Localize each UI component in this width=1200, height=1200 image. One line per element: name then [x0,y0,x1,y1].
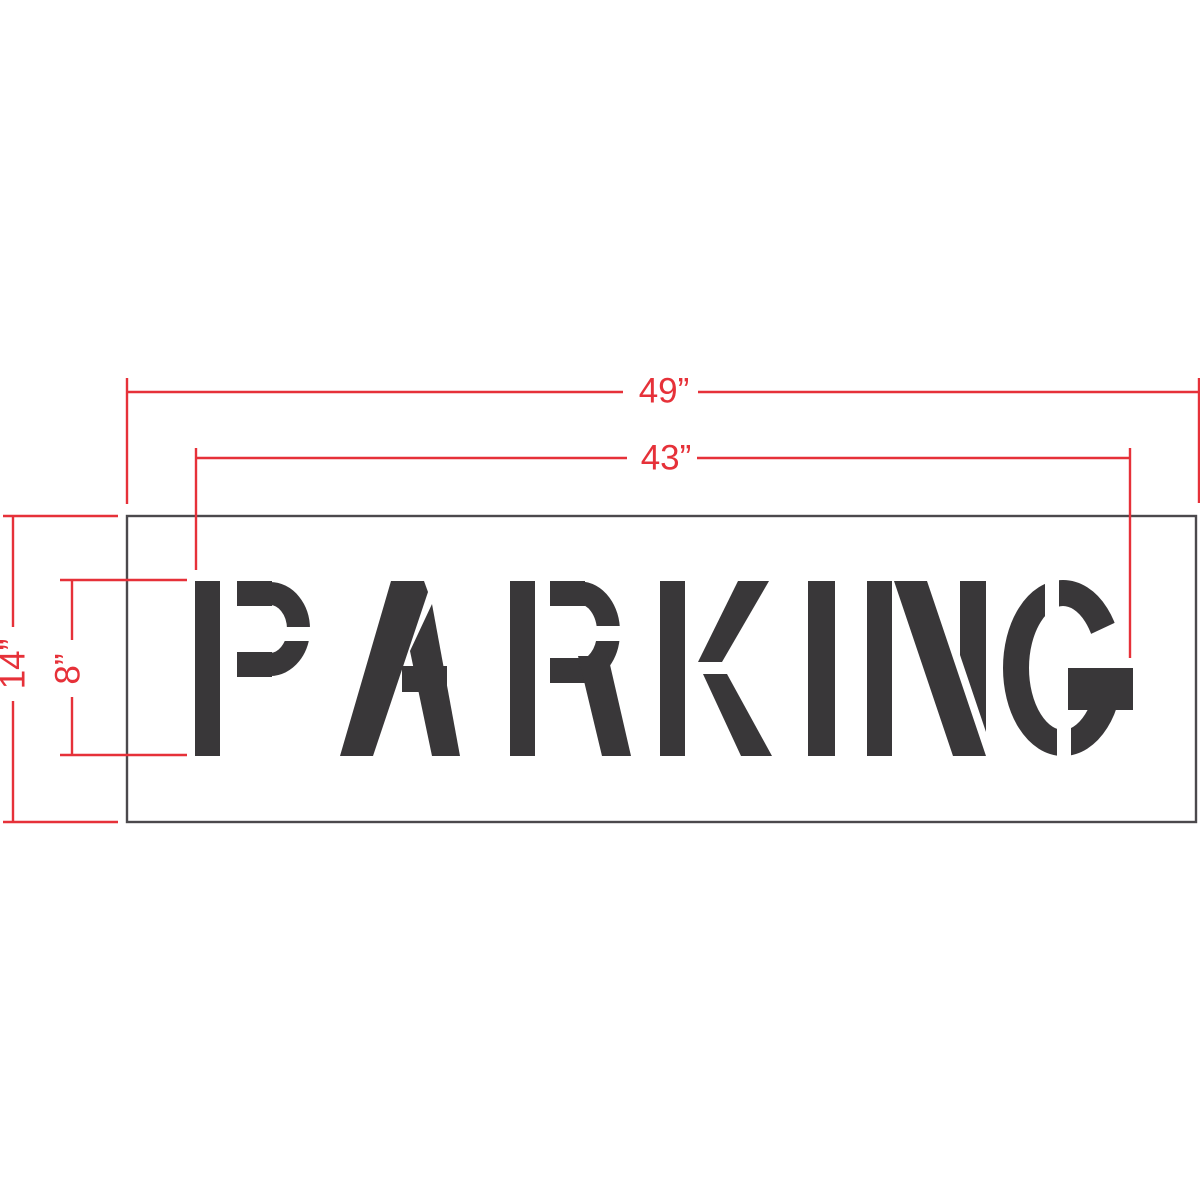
overall-height-label: 14” [0,639,31,690]
text-width-label: 43” [641,441,692,476]
stencil-letter-i [808,581,835,756]
diagram-svg [0,0,1200,1200]
stencil-dimension-diagram: 49” 43” 14” 8” [0,0,1200,1200]
overall-width-label: 49” [639,374,690,409]
letter-height-label: 8” [51,653,86,684]
